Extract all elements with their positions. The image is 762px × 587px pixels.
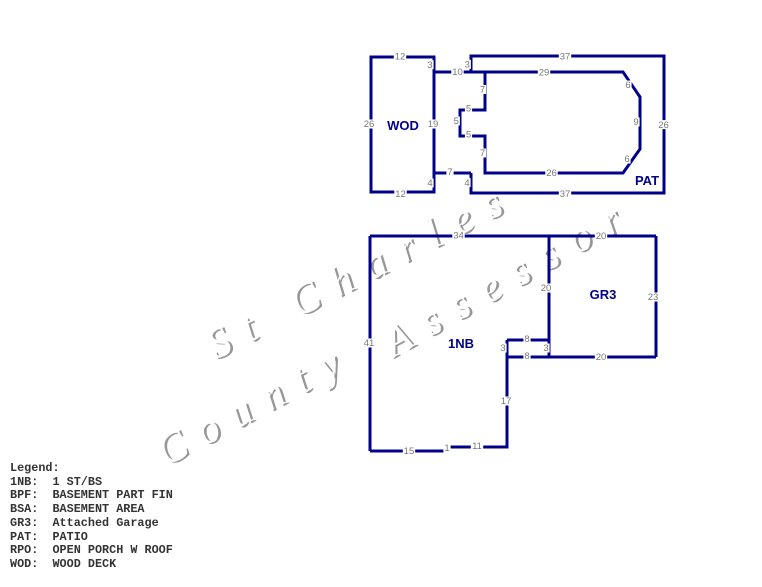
svg-text:7: 7 [480,148,485,159]
svg-text:37: 37 [560,189,571,200]
svg-text:15: 15 [404,446,415,457]
svg-text:26: 26 [364,119,375,130]
svg-text:8: 8 [524,351,529,362]
svg-text:20: 20 [541,283,552,294]
svg-text:34: 34 [453,231,464,242]
svg-text:4: 4 [427,178,432,189]
svg-text:12: 12 [395,189,406,200]
svg-text:20: 20 [596,352,607,363]
svg-text:PAT: PAT [635,173,659,188]
svg-text:3: 3 [543,343,548,354]
svg-text:9: 9 [633,117,638,128]
svg-text:3: 3 [427,60,432,71]
svg-text:29: 29 [539,68,550,79]
svg-text:8: 8 [524,334,529,345]
svg-text:5: 5 [466,104,471,115]
svg-text:7: 7 [447,167,452,178]
svg-text:WOD: WOD [387,118,419,133]
svg-text:5: 5 [454,116,459,127]
svg-text:4: 4 [464,178,469,189]
svg-text:1: 1 [444,443,449,454]
svg-text:10: 10 [452,67,463,78]
svg-text:19: 19 [428,119,439,130]
svg-text:41: 41 [364,338,375,349]
svg-text:20: 20 [596,231,607,242]
svg-text:17: 17 [501,396,512,407]
svg-text:26: 26 [546,168,557,179]
svg-text:37: 37 [560,52,571,63]
svg-text:26: 26 [658,120,669,131]
svg-text:3: 3 [500,343,505,354]
svg-text:11: 11 [472,441,482,452]
svg-text:GR3: GR3 [590,287,617,302]
svg-text:23: 23 [648,292,659,303]
svg-text:1NB: 1NB [448,336,474,351]
svg-text:12: 12 [395,52,406,63]
svg-text:7: 7 [480,85,485,96]
svg-text:6: 6 [624,154,629,165]
svg-text:5: 5 [466,130,471,141]
svg-text:6: 6 [625,80,630,91]
svg-text:3: 3 [465,60,470,71]
